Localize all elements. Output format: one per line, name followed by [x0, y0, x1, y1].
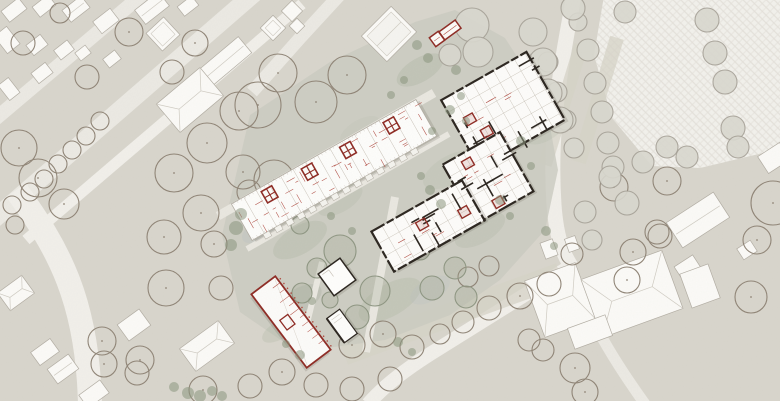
paper-texture — [0, 0, 780, 401]
site-plan-canvas — [0, 0, 780, 401]
site-plan — [0, 0, 780, 401]
texture-layer — [0, 0, 780, 401]
